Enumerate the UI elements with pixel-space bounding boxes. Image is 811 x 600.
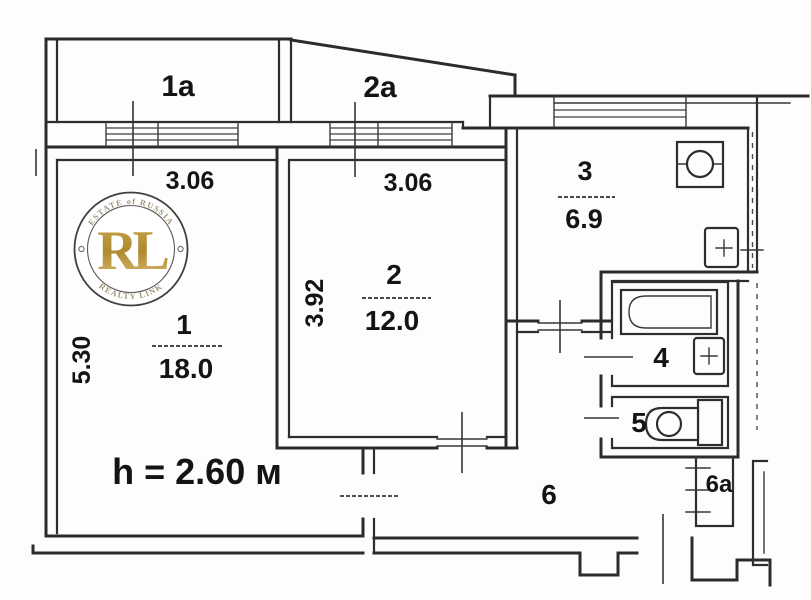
room-5-number: 5 xyxy=(631,407,647,438)
room-3-labels: 3 6.9 xyxy=(558,156,615,234)
kitchen-right-wall xyxy=(741,96,763,272)
wall-room2-hall xyxy=(277,412,517,473)
room-3-number: 3 xyxy=(577,156,592,186)
wall-room2-kitchen xyxy=(506,128,517,447)
room-4-number: 4 xyxy=(653,342,669,373)
room-1-depth-dimension: 5.30 xyxy=(68,336,96,385)
kitchen-stove-icon xyxy=(705,228,738,267)
wall-room1-room2 xyxy=(277,147,289,448)
window-room-1 xyxy=(106,101,238,176)
hall-bottom-wall xyxy=(374,514,770,585)
window-2-dimension: 3.06 xyxy=(384,169,433,197)
room-3-area: 6.9 xyxy=(565,204,603,234)
room-1-area: 18.0 xyxy=(159,353,214,384)
room-6a-number: 6a xyxy=(706,471,733,498)
kitchen-bottom-wall xyxy=(506,300,610,353)
agency-watermark: ESTATE of RUSSIA REALTY LINK RL xyxy=(75,193,188,306)
room-2-labels: 2 12.0 3.92 xyxy=(301,259,431,336)
balcony-2a xyxy=(291,40,515,128)
washbasin-icon xyxy=(694,338,724,374)
room-1-labels: 1 18.0 5.30 xyxy=(68,309,223,384)
facade-wall xyxy=(36,147,506,176)
room-2-number: 2 xyxy=(386,259,402,290)
ceiling-height-note: h = 2.60 м xyxy=(112,451,282,492)
bathtub-icon xyxy=(621,290,717,334)
balcony-2a-label: 2a xyxy=(363,71,397,104)
window-1-dimension: 3.06 xyxy=(166,167,215,195)
room-2-area: 12.0 xyxy=(365,305,420,336)
neighbor-wall-fragments xyxy=(753,283,767,565)
room-6-number: 6 xyxy=(541,479,557,510)
floor-plan-drawing: 1a 2a 3.06 3.06 1 18.0 5.30 2 12.0 3.92 … xyxy=(0,0,811,600)
kitchen-sink-icon xyxy=(677,142,723,187)
room-1-number: 1 xyxy=(176,309,192,340)
window-room-2 xyxy=(330,102,452,177)
watermark-monogram: RL xyxy=(97,220,167,282)
floor-plan-scan: 1a 2a 3.06 3.06 1 18.0 5.30 2 12.0 3.92 … xyxy=(0,0,811,600)
room-2-depth-dimension: 3.92 xyxy=(301,279,329,328)
toilet-icon xyxy=(646,400,722,445)
balcony-1a-label: 1a xyxy=(161,70,195,103)
